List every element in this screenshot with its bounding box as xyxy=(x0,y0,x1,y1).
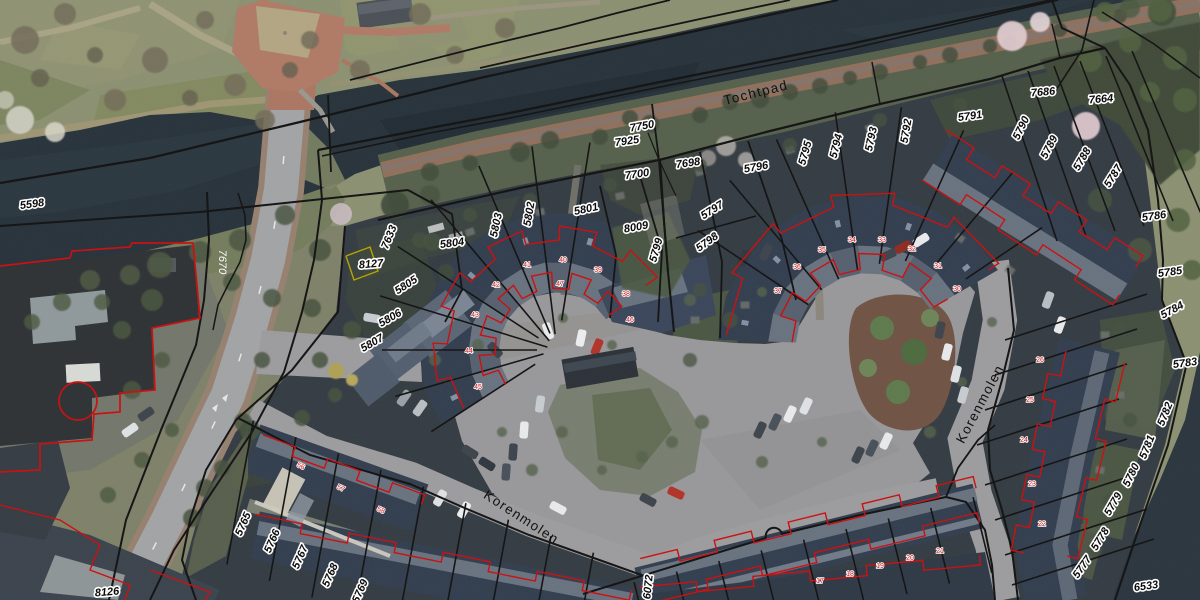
svg-text:7686: 7686 xyxy=(1030,85,1056,99)
svg-text:45: 45 xyxy=(474,384,482,391)
svg-text:37: 37 xyxy=(774,288,782,295)
svg-text:40: 40 xyxy=(559,257,567,264)
svg-text:7664: 7664 xyxy=(1088,92,1113,106)
svg-text:26: 26 xyxy=(1036,357,1044,364)
svg-text:24: 24 xyxy=(1020,437,1028,444)
svg-text:35: 35 xyxy=(818,247,826,254)
svg-text:7670: 7670 xyxy=(216,250,228,275)
svg-text:33: 33 xyxy=(878,237,886,244)
svg-text:44: 44 xyxy=(465,348,473,355)
svg-text:17: 17 xyxy=(816,578,824,585)
svg-text:20: 20 xyxy=(906,555,914,562)
svg-text:25: 25 xyxy=(1026,397,1034,404)
svg-text:30: 30 xyxy=(953,286,961,293)
svg-text:23: 23 xyxy=(1028,481,1036,488)
svg-text:19: 19 xyxy=(876,563,884,570)
svg-text:6072: 6072 xyxy=(641,574,655,600)
svg-text:46: 46 xyxy=(626,317,634,324)
svg-text:41: 41 xyxy=(523,262,531,269)
svg-text:21: 21 xyxy=(936,548,944,555)
svg-text:36: 36 xyxy=(793,264,801,271)
svg-text:8127: 8127 xyxy=(358,257,384,271)
svg-text:18: 18 xyxy=(846,571,854,578)
svg-text:32: 32 xyxy=(908,246,916,253)
svg-text:31: 31 xyxy=(934,263,942,270)
svg-text:39: 39 xyxy=(594,267,602,274)
svg-text:43: 43 xyxy=(471,312,479,319)
svg-text:38: 38 xyxy=(622,291,630,298)
svg-text:47: 47 xyxy=(556,281,564,288)
svg-text:34: 34 xyxy=(848,237,856,244)
svg-text:8126: 8126 xyxy=(94,585,120,599)
svg-text:42: 42 xyxy=(492,282,500,289)
svg-text:22: 22 xyxy=(1038,521,1046,528)
